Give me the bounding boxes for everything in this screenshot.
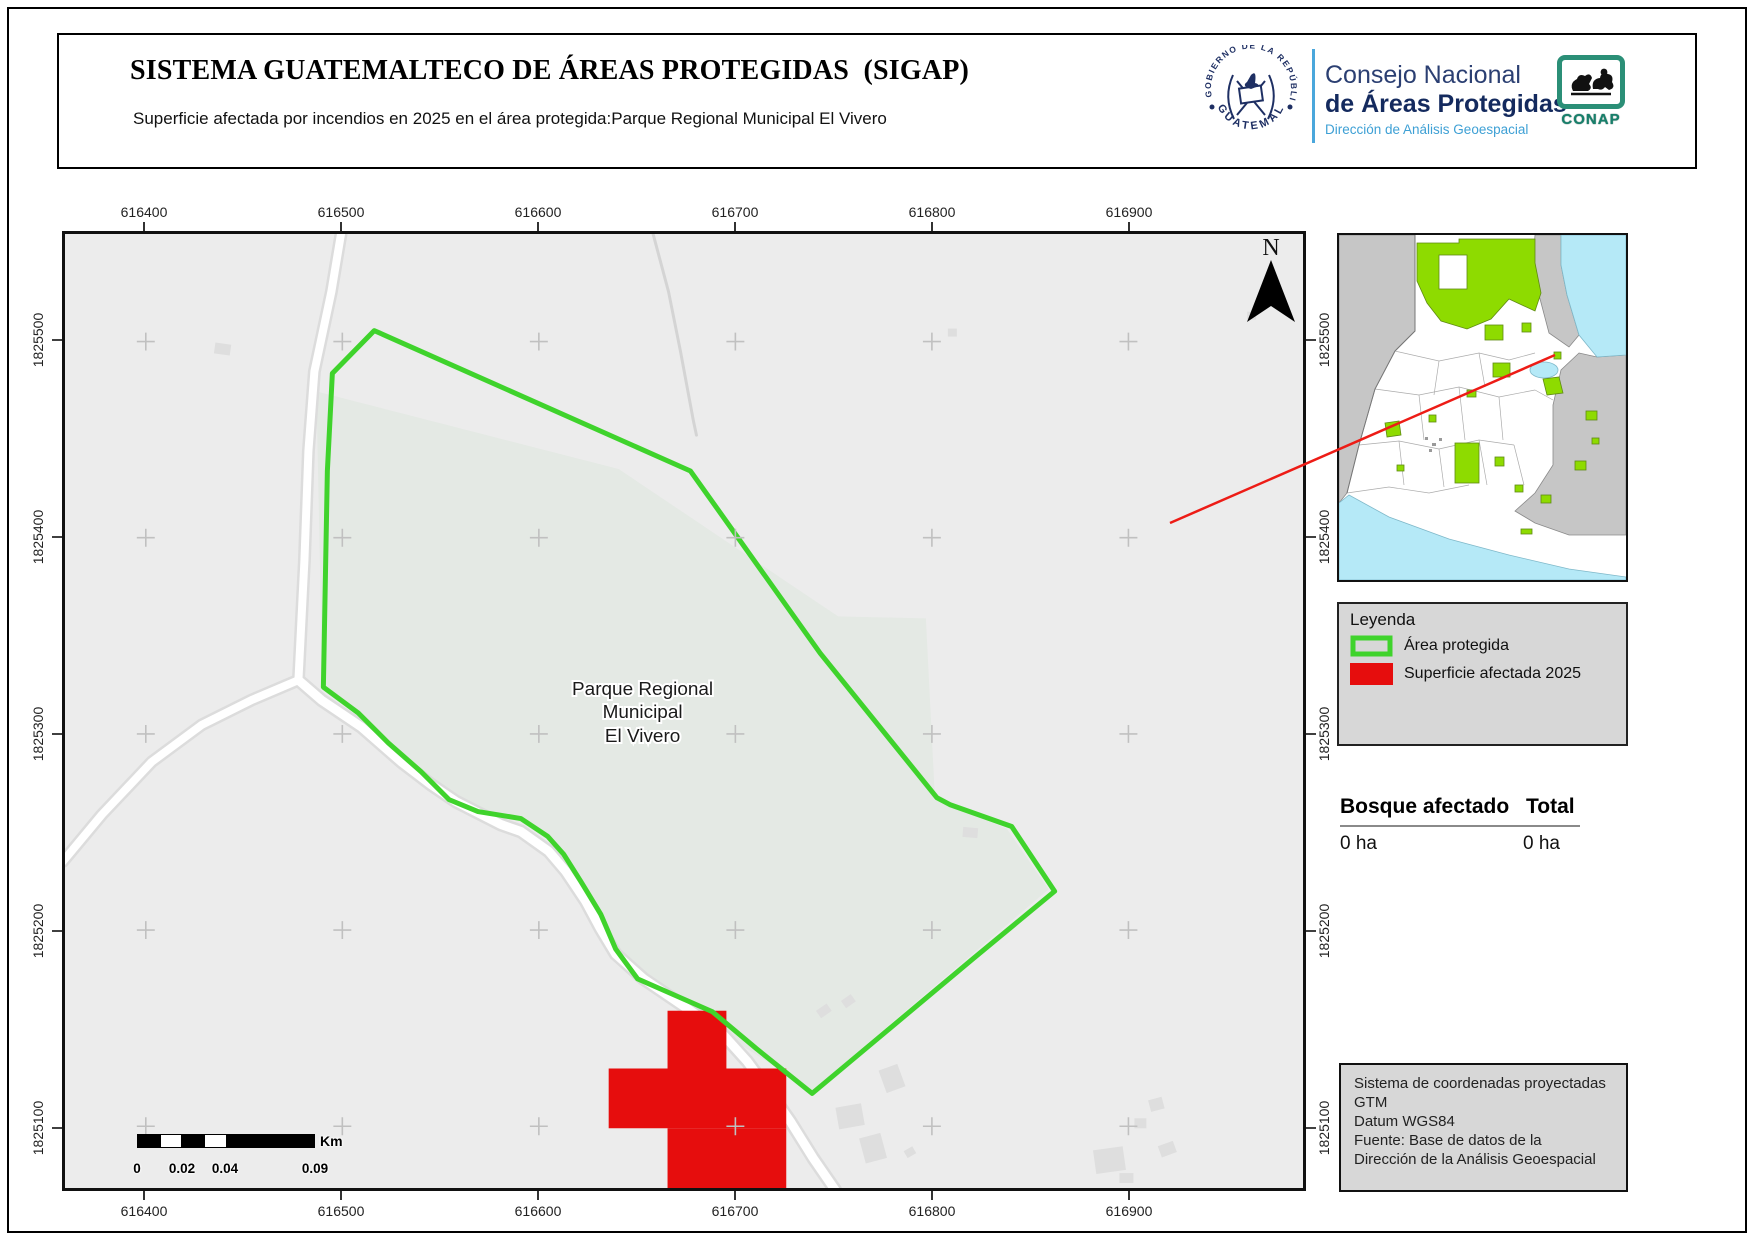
- axis-label-bottom-3: 616700: [712, 1203, 759, 1219]
- legend-label-affected: Superficie afectada 2025: [1404, 665, 1581, 683]
- stats-col2-header: Total: [1526, 795, 1575, 819]
- north-arrow: N: [1243, 236, 1299, 329]
- axis-label-bottom-4: 616800: [909, 1203, 956, 1219]
- axis-label-left-3: 1825200: [30, 904, 46, 959]
- north-label: N: [1243, 236, 1299, 260]
- info-line-4: Dirección de la Análisis Geoespacial: [1354, 1150, 1626, 1169]
- coordinate-system-info: Sistema de coordenadas proyectadas GTM D…: [1339, 1063, 1628, 1192]
- scalebar-label-2: 0.04: [212, 1161, 238, 1176]
- legend-title: Leyenda: [1350, 610, 1415, 630]
- scalebar-label-1: 0.02: [169, 1161, 195, 1176]
- axis-label-bottom-1: 616500: [318, 1203, 365, 1219]
- scalebar-unit: Km: [320, 1133, 343, 1149]
- conap-line1: Consejo Nacional: [1325, 63, 1567, 88]
- info-line-3: Fuente: Base de datos de la: [1354, 1131, 1626, 1150]
- page-title: SISTEMA GUATEMALTECO DE ÁREAS PROTEGIDAS…: [130, 55, 969, 87]
- scalebar-label-0: 0: [133, 1161, 141, 1176]
- axis-label-bottom-2: 616600: [515, 1203, 562, 1219]
- legend: Leyenda Área protegida Superficie afecta…: [1337, 602, 1628, 746]
- axis-label-left-2: 1825300: [30, 707, 46, 762]
- protected-area-swatch-icon: [1350, 635, 1393, 657]
- axis-label-right-2: 1825300: [1316, 707, 1332, 762]
- place-label-line2: Municipal: [603, 702, 683, 723]
- axis-label-top-0: 616400: [121, 204, 168, 220]
- axis-label-bottom-5: 616900: [1106, 1203, 1153, 1219]
- info-line-0: Sistema de coordenadas proyectadas: [1354, 1074, 1626, 1093]
- affected-surface-swatch-icon: [1350, 663, 1393, 685]
- axis-label-right-1: 1825400: [1316, 510, 1332, 565]
- axis-label-top-4: 616800: [909, 204, 956, 220]
- axis-label-top-3: 616700: [712, 204, 759, 220]
- conap-line3: Dirección de Análisis Geoespacial: [1325, 123, 1567, 137]
- legend-item-protected: Área protegida: [1350, 635, 1509, 657]
- axis-label-left-1: 1825400: [30, 510, 46, 565]
- affected-forest-table: Bosque afectado Total 0 ha 0 ha: [1340, 795, 1580, 857]
- inset-map: [1337, 233, 1628, 582]
- conap-logo: CONAP: [1555, 55, 1627, 128]
- scalebar: Km 0 0.02 0.04 0.09: [137, 1133, 367, 1177]
- legend-item-affected: Superficie afectada 2025: [1350, 663, 1581, 685]
- stats-col1-header: Bosque afectado: [1340, 795, 1509, 818]
- axis-label-top-5: 616900: [1106, 204, 1153, 220]
- axis-label-left-0: 1825500: [30, 313, 46, 368]
- info-line-1: GTM: [1354, 1093, 1626, 1112]
- main-map: Parque Regional Municipal El Vivero: [62, 231, 1306, 1191]
- axis-label-right-0: 1825500: [1316, 313, 1332, 368]
- stats-col1-value: 0 ha: [1340, 833, 1377, 854]
- north-arrow-icon: [1247, 260, 1295, 324]
- place-label-line3: El Vivero: [605, 726, 680, 747]
- header: SISTEMA GUATEMALTECO DE ÁREAS PROTEGIDAS…: [57, 33, 1697, 169]
- legend-label-protected: Área protegida: [1404, 637, 1509, 655]
- info-line-2: Datum WGS84: [1354, 1112, 1626, 1131]
- government-emblem-icon: GOBIERNO DE LA REPÚBLICA GUATEMALA: [1199, 45, 1303, 149]
- logo-separator: [1312, 49, 1315, 143]
- axis-label-top-1: 616500: [318, 204, 365, 220]
- conap-wordmark: Consejo Nacional de Áreas Protegidas Dir…: [1325, 63, 1567, 137]
- conap-logo-icon: [1557, 55, 1625, 109]
- axis-label-right-4: 1825100: [1316, 1101, 1332, 1156]
- scalebar-label-3: 0.09: [302, 1161, 328, 1176]
- place-label-line1: Parque Regional: [572, 679, 713, 700]
- page-subtitle: Superficie afectada por incendios en 202…: [133, 109, 887, 129]
- axis-label-bottom-0: 616400: [121, 1203, 168, 1219]
- axis-label-left-4: 1825100: [30, 1101, 46, 1156]
- conap-line2: de Áreas Protegidas: [1325, 92, 1567, 117]
- scalebar-bar: [137, 1134, 315, 1148]
- axis-label-right-3: 1825200: [1316, 904, 1332, 959]
- stats-col2-value: 0 ha: [1523, 833, 1560, 855]
- map-report-page: SISTEMA GUATEMALTECO DE ÁREAS PROTEGIDAS…: [0, 0, 1754, 1240]
- conap-badge-label: CONAP: [1555, 111, 1627, 128]
- axis-label-top-2: 616600: [515, 204, 562, 220]
